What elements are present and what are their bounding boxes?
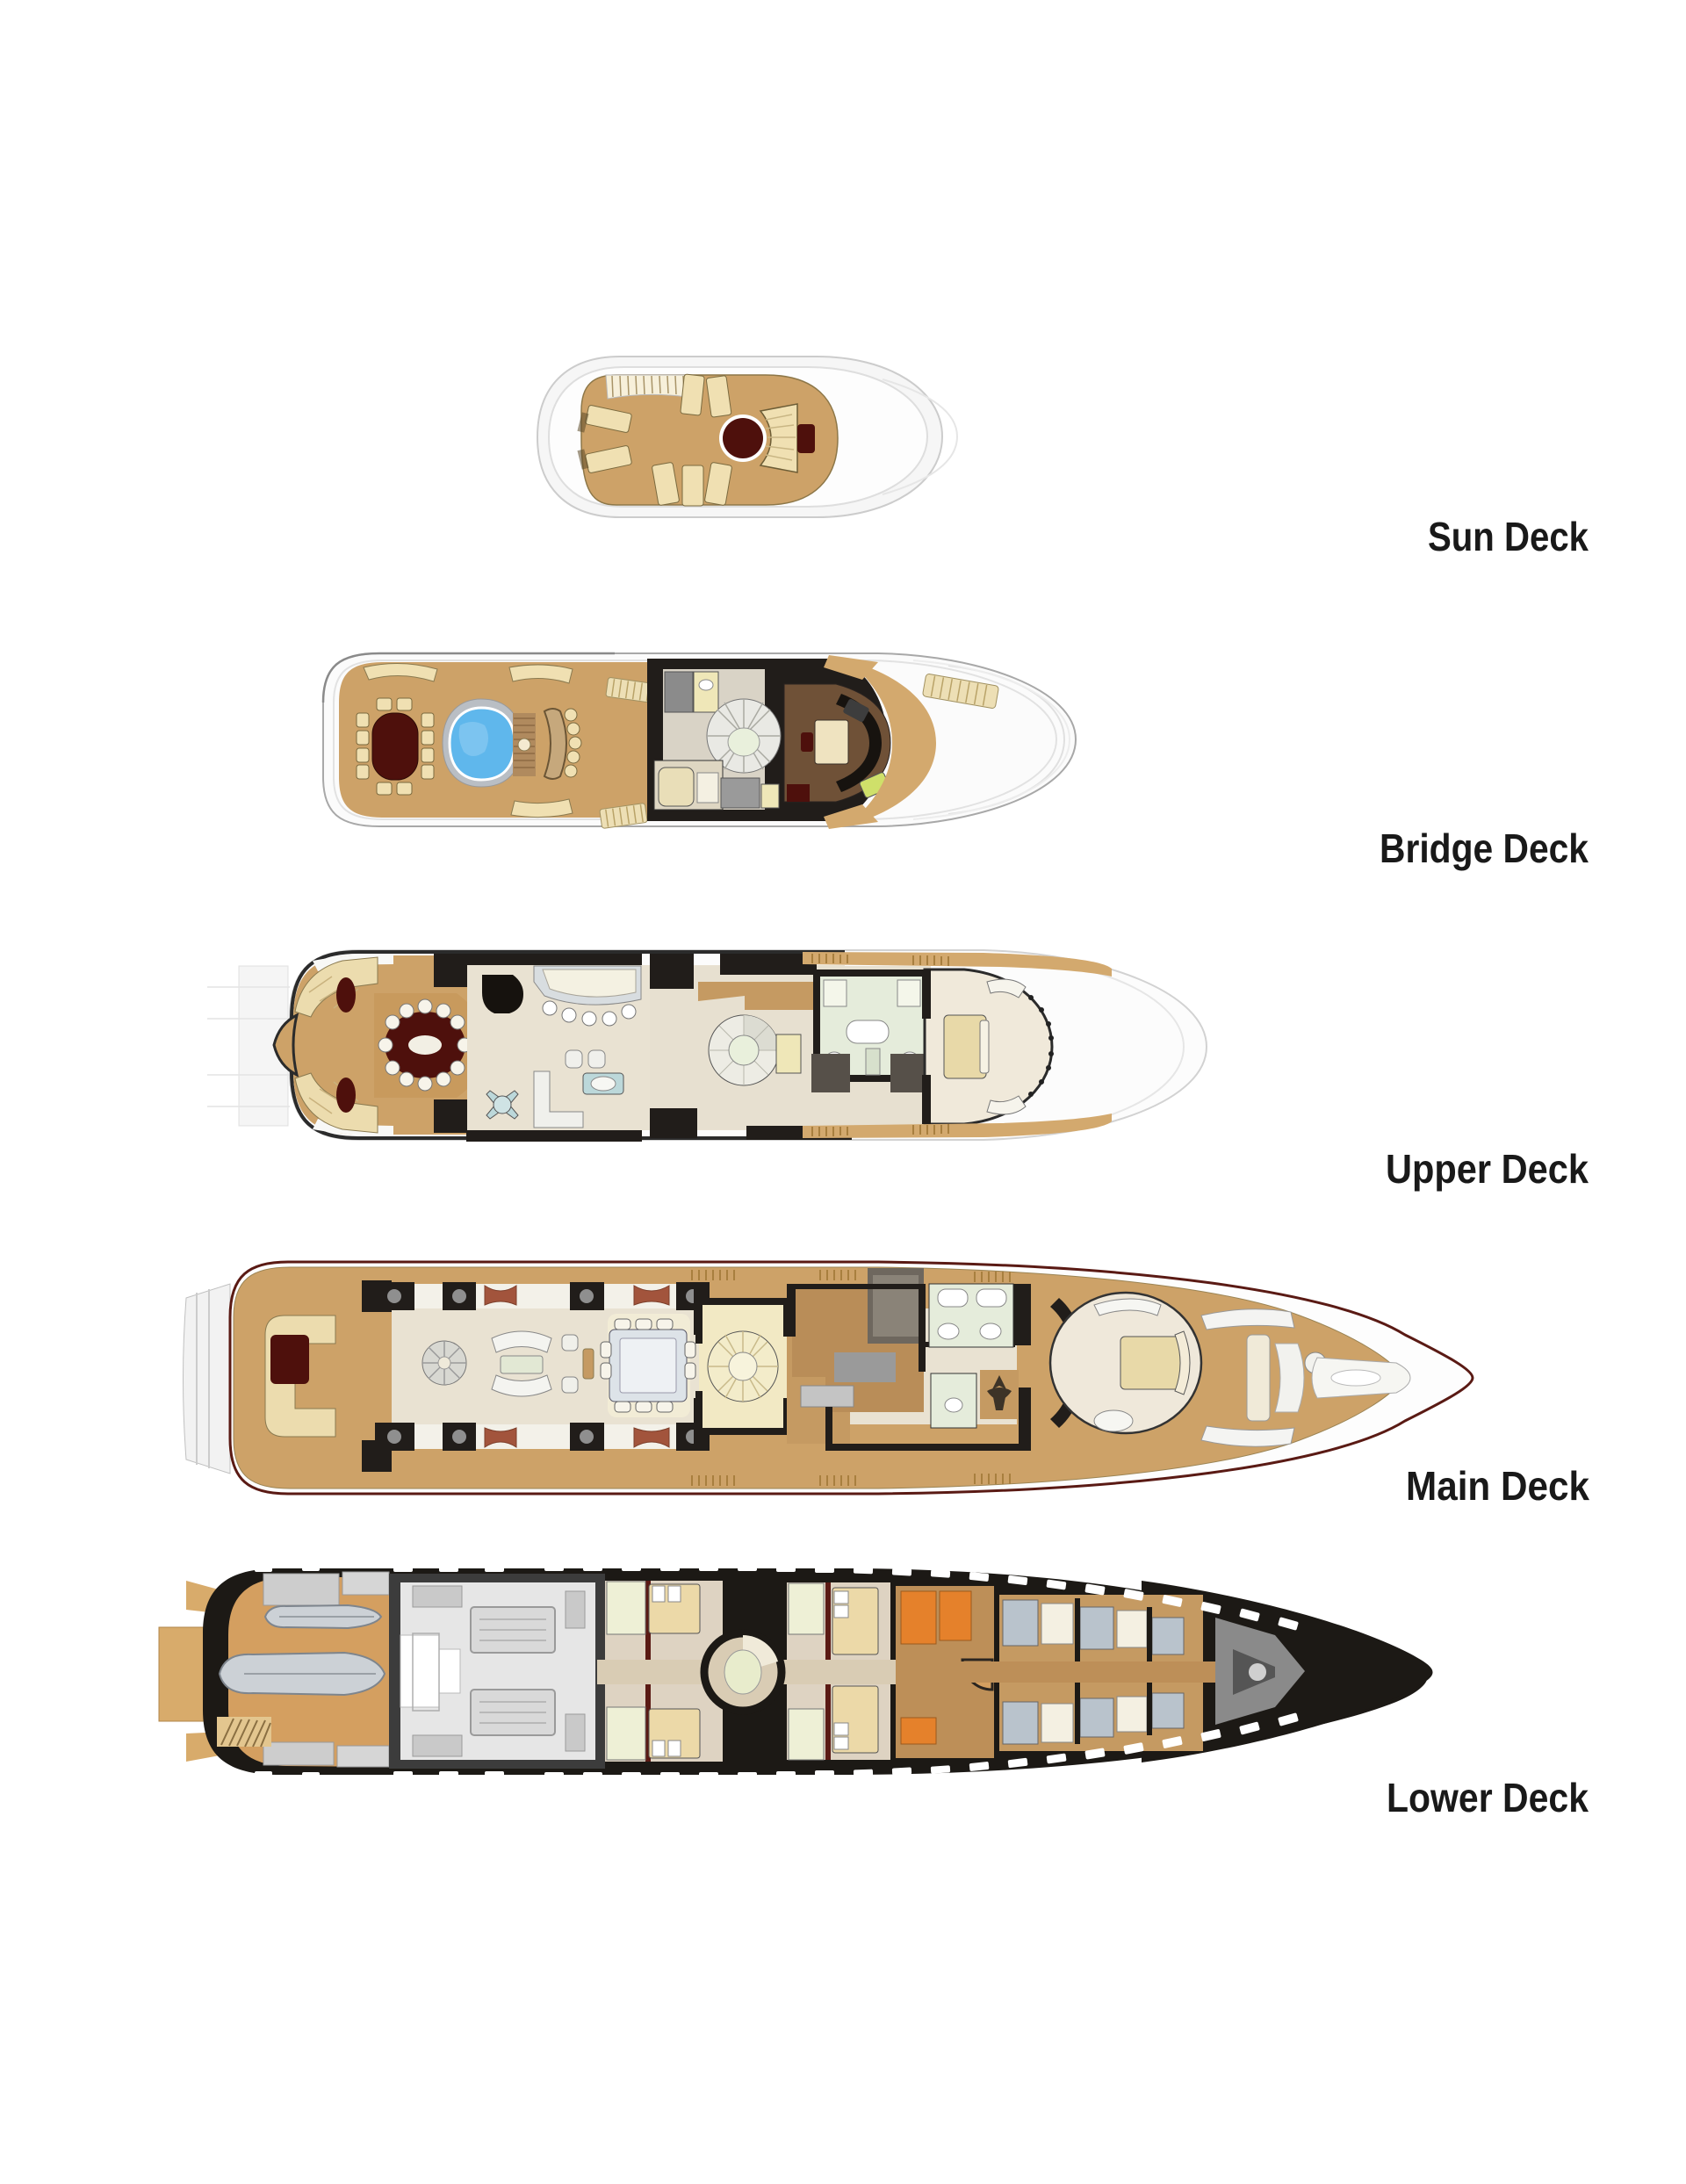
svg-text:Bridge Deck: Bridge Deck [1380, 825, 1589, 871]
svg-text:Lower Deck: Lower Deck [1387, 1775, 1589, 1820]
svg-text:Main Deck: Main Deck [1406, 1463, 1589, 1509]
svg-text:Sun Deck: Sun Deck [1428, 514, 1589, 559]
svg-text:Upper Deck: Upper Deck [1386, 1146, 1589, 1192]
